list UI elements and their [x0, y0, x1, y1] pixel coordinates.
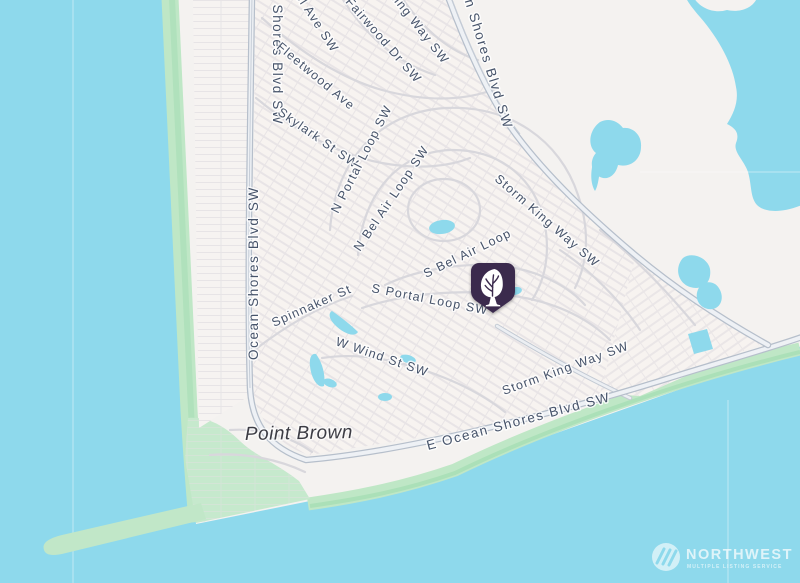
map-svg[interactable]: n Shores Blvd SW Ocean Shores Blvd SW el…	[0, 0, 800, 583]
place-label-point-brown: Point Brown	[245, 422, 353, 445]
watermark-tagline: MULTIPLE LISTING SERVICE	[687, 564, 782, 570]
nwmls-logo-icon	[652, 543, 680, 571]
street-label-ocean-shores-blvd: Ocean Shores Blvd SW	[246, 186, 261, 360]
nwmls-watermark: NORTHWEST MULTIPLE LISTING SERVICE	[652, 543, 793, 571]
map-canvas[interactable]: n Shores Blvd SW Ocean Shores Blvd SW el…	[0, 0, 800, 583]
watermark-brand: NORTHWEST	[686, 547, 793, 563]
